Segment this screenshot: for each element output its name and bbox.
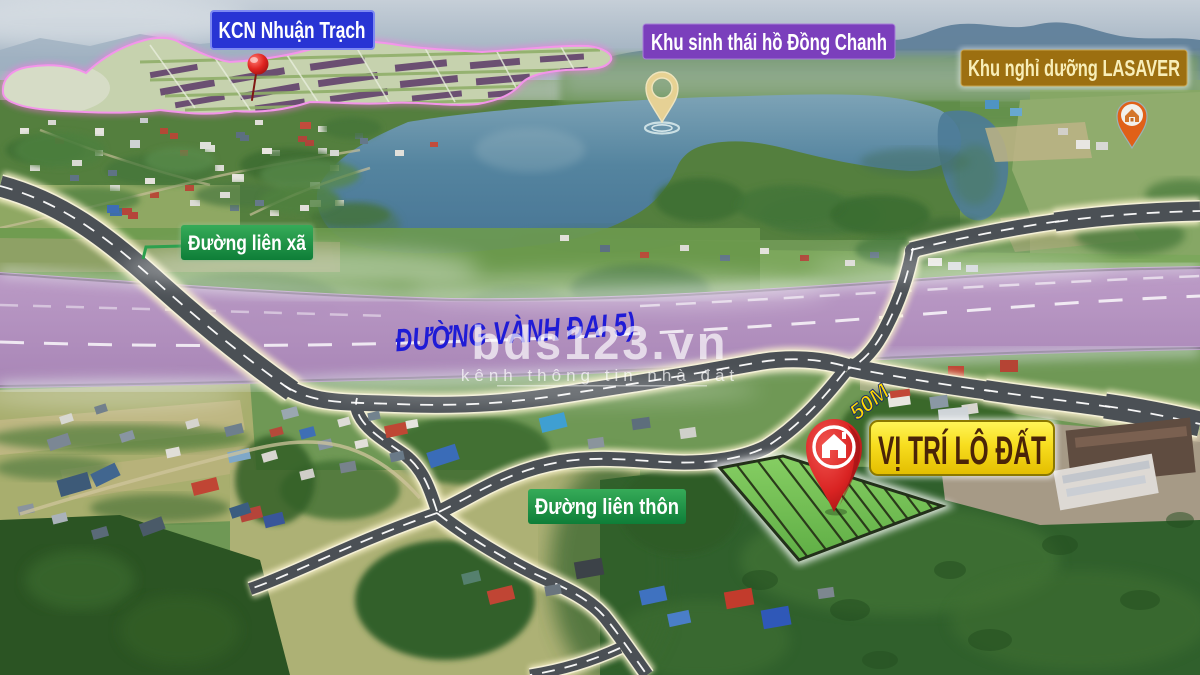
svg-text:KCN Nhuận Trạch: KCN Nhuận Trạch — [219, 17, 366, 43]
svg-text:bds123.vn: bds123.vn — [472, 316, 729, 369]
svg-text:kênh thông tin nhà đất: kênh thông tin nhà đất — [461, 366, 739, 385]
svg-text:Khu sinh thái hồ Đồng Chanh: Khu sinh thái hồ Đồng Chanh — [651, 29, 887, 55]
svg-text:VỊ TRÍ LÔ ĐẤT: VỊ TRÍ LÔ ĐẤT — [878, 427, 1046, 473]
svg-text:Khu nghỉ dưỡng LASAVER: Khu nghỉ dưỡng LASAVER — [968, 55, 1180, 81]
svg-text:Đường liên thôn: Đường liên thôn — [535, 494, 679, 519]
svg-text:Đường liên xã: Đường liên xã — [188, 232, 306, 255]
